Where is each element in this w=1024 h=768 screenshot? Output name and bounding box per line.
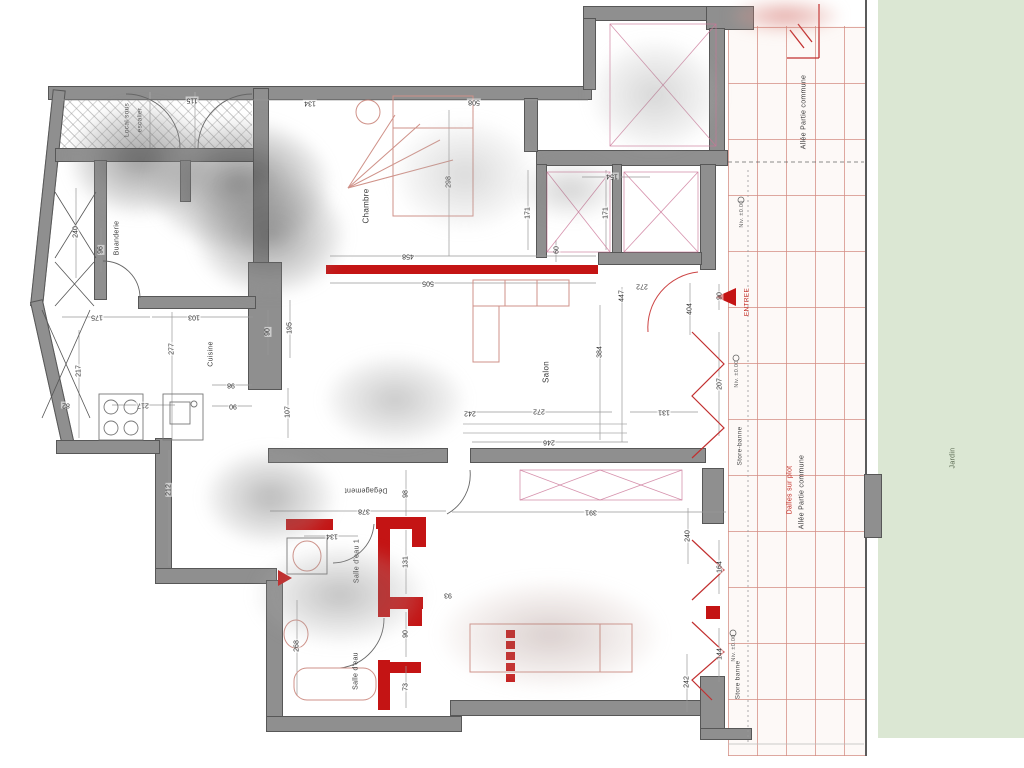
dimension-378: 378 [357,508,371,515]
dimension-240: 240 [685,529,692,543]
dimension-277: 277 [169,342,176,356]
label-all-e-partie-commune: Allée Partie commune [801,75,808,149]
dimension-217: 217 [76,364,83,378]
sofa-side [473,306,499,362]
red-window-pier [706,606,720,619]
dimension-lines [62,100,726,712]
label-niv-0-00: Niv. ±0.00 [739,200,745,227]
dimension-98: 98 [403,489,410,499]
dimension-93: 93 [443,592,453,599]
label-store-banne: Store-banne [737,426,744,465]
bed-bedroom [470,624,632,672]
dimension-171: 171 [525,206,532,220]
dimension-164: 164 [717,560,724,574]
dimension-242: 242 [684,675,691,689]
dimension-242: 242 [463,410,477,417]
sofa-back [473,280,569,306]
label-buanderie: Buanderie [114,221,121,256]
dimension-107: 107 [285,405,292,419]
door-arcs [103,94,470,668]
label-d-gagement: Dégagement [344,487,387,494]
label-jardin: Jardin [950,448,957,469]
dimension-272: 272 [635,283,649,290]
label-niv-0-00: Niv. ±0.00 [734,360,740,387]
dimension-384: 384 [597,345,604,359]
bathroom-arrow-icon [278,570,292,586]
label-escalier: escalier [137,108,144,133]
bay-window-lines [150,92,627,433]
dimension-447: 447 [619,289,626,303]
dimension-90: 90 [403,629,410,639]
closet-x-red [520,24,716,500]
dimension-391: 391 [584,509,598,516]
dimension-90: 90 [717,291,724,301]
dimension-505: 505 [421,280,435,287]
label-salle-d-eau: Salle d'eau [353,652,360,690]
label-cuisine: Cuisine [208,341,215,366]
dimension-115: 115 [185,97,198,104]
side-table [356,100,380,124]
dimension-268: 268 [294,639,301,653]
dimension-508: 508 [467,99,481,106]
washbasin-1 [293,541,321,571]
dimension-82: 82 [61,402,71,409]
dimension-175: 175 [90,314,104,321]
label-chambre: Chambre [362,188,371,223]
label-niv-0-00: Niv. ±0.00 [731,634,737,661]
dimension-298: 298 [446,175,453,189]
red-markers [278,288,736,682]
dimension-90: 90 [265,327,272,337]
dimension-154: 154 [605,173,619,180]
dimension-171: 171 [603,206,610,220]
label-local-sous: Local sous [124,103,131,137]
walkway-guides [728,162,864,744]
dimension-73: 73 [403,682,410,692]
dimension-134: 134 [303,100,317,107]
label-dalles-sur-plot: Dalles sur plot [787,466,794,515]
dimension-272: 272 [532,408,546,415]
dimension-90: 90 [228,403,238,410]
dimension-217: 217 [136,402,150,409]
dimension-103: 103 [187,314,201,321]
bathtub [294,668,376,700]
kitchen-fixtures [99,394,327,574]
label-salon: Salon [542,361,551,383]
dimension-134: 134 [325,533,339,540]
dimension-246: 246 [542,439,556,446]
label-entree: ENTREE [744,288,751,316]
dimension-144: 144 [717,647,724,661]
dimension-458: 458 [401,253,415,260]
dimension-131: 131 [403,555,410,569]
bed-chambre [393,96,473,216]
dimension-212: 212 [166,483,173,497]
dimension-60: 60 [554,245,561,255]
dimension-98: 98 [226,382,236,389]
label-salle-d-eau-1: Salle d'eau 1 [354,539,361,583]
gate-lines [787,4,819,58]
kitchen-sink [163,394,203,440]
dimension-404: 404 [687,302,694,316]
dimension-207: 207 [717,377,724,391]
dimension-131: 131 [657,409,671,416]
dimension-240: 240 [73,225,80,239]
closet-x-gray [42,192,96,418]
label-store-banne: Store banne [735,661,742,700]
floor-plan-canvas: Local sousescalierBuanderieChambreCuisin… [0,0,1024,768]
plan-linework [0,0,1024,768]
label-all-e-partie-commune: Allée Partie commune [799,455,806,529]
furniture [284,96,632,700]
dimension-96: 96 [98,245,105,255]
dimension-195: 195 [287,321,294,335]
